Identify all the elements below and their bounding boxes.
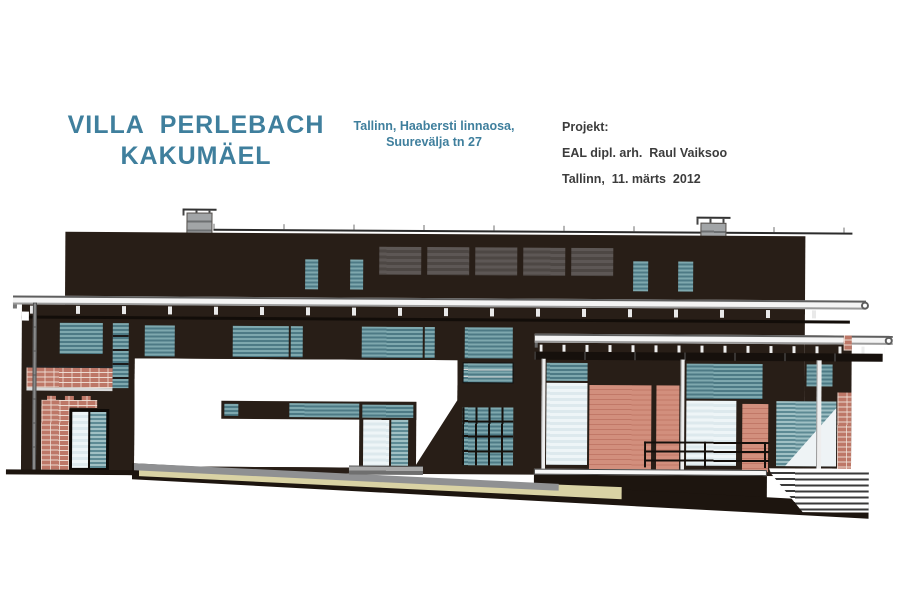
entry-side-light (391, 420, 408, 466)
ribbon-window (425, 327, 435, 358)
upper-window (350, 260, 363, 290)
stairwell-grid-window (462, 407, 513, 465)
ribbon-window (362, 327, 423, 358)
scanned-drawing-sheet: VILLA PERLEBACH KAKUMÄEL Tallinn, Haaber… (0, 0, 900, 598)
entry-glass-door (363, 420, 389, 466)
terrace-transom (547, 363, 588, 381)
brick-column (41, 406, 69, 472)
parapet-ledge (26, 388, 112, 392)
clerestory-window (571, 248, 613, 276)
entry-steps (349, 466, 423, 475)
terrace-post (541, 359, 546, 471)
brick-parapet-band (26, 366, 112, 389)
clerestory-window (475, 247, 517, 275)
glass-reflection (776, 401, 836, 466)
ribbon-window (233, 326, 289, 357)
left-glass-door (90, 412, 106, 468)
ribbon-window (465, 327, 513, 358)
terrace-glass (546, 383, 588, 465)
brick-pier (837, 393, 851, 471)
wood-siding-panel (589, 385, 652, 471)
left-glass-door (72, 412, 88, 468)
ribbon-window (291, 326, 303, 357)
ground-line-left (6, 469, 134, 475)
upper-window (305, 259, 318, 289)
ribbon-window (145, 325, 175, 356)
terrace-railing (644, 441, 769, 468)
clerestory-window (523, 248, 565, 276)
terrace-post (816, 360, 822, 472)
upper-window (633, 261, 648, 291)
clerestory-window (379, 247, 421, 275)
ribbon-window (60, 323, 103, 354)
stairwell-band-window (462, 362, 513, 383)
wall-notch (22, 312, 29, 321)
ladder-window (112, 323, 128, 388)
building-elevation (0, 0, 900, 598)
clerestory-window (427, 247, 469, 275)
upper-window (678, 262, 693, 292)
entry-transom (362, 405, 413, 418)
brick-sliver (844, 336, 852, 351)
beam-window (289, 403, 359, 417)
terrace-canopy-end-pipe (885, 337, 893, 345)
corner-glass (776, 401, 836, 466)
terrace-transom (686, 364, 762, 399)
canopy-end-pipe (861, 302, 869, 310)
beam-window (224, 404, 238, 416)
